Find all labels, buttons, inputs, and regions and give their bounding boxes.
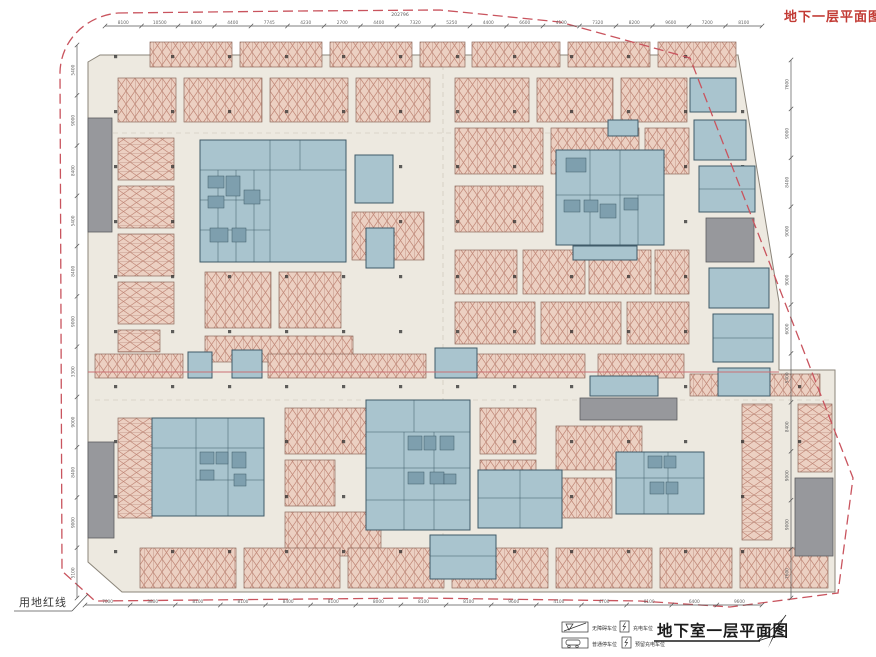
core-room	[355, 155, 393, 203]
basement-floor-plan: 8100105008400440077454230270044007320525…	[0, 0, 876, 657]
dimension-value: 9000	[785, 470, 791, 481]
dimension-value: 8400	[71, 265, 77, 276]
elevator-shaft	[650, 482, 664, 494]
legend: 无障碍车位 充电车位 普通停车位 预留充电车位	[562, 621, 665, 648]
core-room	[573, 246, 637, 260]
dimension-value: 9000	[71, 517, 77, 528]
core-room	[430, 535, 496, 579]
dimension-value: 3300	[71, 366, 77, 377]
dimension-value: 8100	[644, 599, 655, 605]
dimension-value: 9000	[785, 274, 791, 285]
dimension-value: 4100	[553, 599, 564, 605]
accessible-mark-icon	[566, 624, 573, 630]
elevator-shaft	[232, 228, 246, 242]
ramp-block	[706, 218, 754, 262]
core-room	[152, 418, 264, 516]
core-room	[435, 348, 477, 378]
dimension-value: 9000	[71, 115, 77, 126]
elevator-shaft	[226, 176, 240, 196]
dimension-value: 5250	[446, 20, 457, 26]
legend-symbol	[576, 645, 578, 647]
elevator-shaft	[208, 176, 224, 188]
dimension-value: 3800	[147, 599, 158, 605]
dimension-value: 5100	[71, 567, 77, 578]
dimension-value: 10500	[153, 20, 167, 26]
dimension-value: 8100	[118, 20, 129, 26]
core-room	[232, 350, 262, 378]
elevator-shaft	[566, 158, 586, 172]
total-dimension-label: 202796	[391, 12, 409, 18]
dimension-value: 7200	[702, 20, 713, 26]
elevator-shaft	[244, 190, 260, 204]
dimension-value: 8400	[785, 177, 791, 188]
dimension-value: 8400	[191, 20, 202, 26]
dimension-value: 4230	[300, 20, 311, 26]
core-room	[188, 352, 212, 378]
elevator-shaft	[440, 436, 454, 450]
elevator-shaft	[232, 452, 246, 468]
dimension-value: 9000	[785, 225, 791, 236]
core-a	[200, 140, 346, 262]
legend-label: 无障碍车位	[592, 625, 617, 632]
dimension-value: 9600	[734, 599, 745, 605]
dimension-value: 8000	[373, 599, 384, 605]
drawing-title-block: 地下室一层平面图	[654, 615, 789, 648]
dimension-value: 6600	[519, 20, 530, 26]
elevator-shaft	[208, 196, 224, 208]
core-room	[608, 120, 638, 136]
elevator-shaft	[430, 472, 444, 484]
dimension-value: 8400	[71, 165, 77, 176]
dimension-value: 8100	[328, 599, 339, 605]
dimension-value: 7320	[592, 20, 603, 26]
dimension-value: 5400	[785, 372, 791, 383]
legend-item-ev-charging: 充电车位	[620, 621, 653, 632]
dimension-value: 2700	[337, 20, 348, 26]
dimension-value: 9000	[71, 316, 77, 327]
elevator-shaft	[666, 482, 678, 494]
dimension-value: 9000	[785, 519, 791, 530]
dimension-strip-top: 8100105008400440077454230270044007320525…	[103, 20, 764, 28]
elevator-shaft	[200, 452, 214, 464]
lightning-icon	[623, 623, 626, 631]
elevator-shaft	[624, 198, 638, 210]
elevator-shaft	[648, 456, 662, 468]
core-room	[709, 268, 769, 308]
dimension-value: 7600	[785, 568, 791, 579]
dimension-value: 7000	[102, 599, 113, 605]
elevator-shaft	[408, 472, 424, 484]
dimension-value: 4400	[373, 20, 384, 26]
legend-label: 普通停车位	[592, 641, 617, 648]
dimension-value: 8100	[418, 599, 429, 605]
car-icon	[566, 640, 580, 645]
elevator-shaft	[600, 204, 616, 218]
dimension-value: 7320	[410, 20, 421, 26]
dimension-value: 9000	[71, 416, 77, 427]
dimension-value: 8100	[738, 20, 749, 26]
dimension-strip-left: 5400900084005400840090003300900084009000…	[71, 43, 80, 600]
core-room	[366, 228, 394, 268]
dimension-value: 7745	[264, 20, 275, 26]
page-title: 地下一层平面图	[784, 9, 876, 24]
core-room	[690, 78, 736, 112]
dimension-value: 5400	[71, 64, 77, 75]
legend-symbol	[568, 645, 570, 647]
dimension-value: 8200	[629, 20, 640, 26]
core-c	[152, 418, 264, 516]
dimension-value: 4400	[483, 20, 494, 26]
elevator-shaft	[424, 436, 436, 450]
elevator-shaft	[408, 436, 422, 450]
dimension-value: 9600	[508, 599, 519, 605]
dimension-value: 8100	[192, 599, 203, 605]
core-room	[694, 120, 746, 160]
ramp-block	[795, 478, 833, 556]
elevator-shaft	[444, 474, 456, 484]
ramp-block	[580, 398, 677, 420]
ramp-block	[88, 442, 114, 538]
legend-item-standard-stall: 普通停车位	[562, 638, 617, 648]
dimension-value: 7600	[785, 79, 791, 90]
elevator-shaft	[200, 470, 214, 480]
dimension-value: 8400	[785, 421, 791, 432]
elevator-shaft	[664, 456, 676, 468]
dimension-value: 6400	[689, 599, 700, 605]
dimension-value: 8100	[237, 599, 248, 605]
site-boundary-label: 用地红线	[19, 595, 67, 609]
elevator-shaft	[234, 474, 246, 486]
elevator-shaft	[210, 228, 228, 242]
dimension-value: 8400	[283, 599, 294, 605]
dimension-value: 8400	[71, 467, 77, 478]
dimension-value: 9600	[665, 20, 676, 26]
core-room	[366, 400, 470, 530]
elevator-shaft	[216, 452, 228, 464]
dimension-value: 4100	[556, 20, 567, 26]
elevator-shaft	[564, 200, 580, 212]
dimension-value: 9000	[785, 128, 791, 139]
legend-item-accessible-stall: 无障碍车位	[562, 622, 617, 632]
elevator-shaft	[584, 200, 598, 212]
core-d	[366, 400, 470, 530]
core-room	[590, 376, 658, 396]
legend-label: 预留充电车位	[635, 641, 665, 648]
drawing-sheet: 8100105008400440077454230270044007320525…	[0, 0, 876, 657]
dimension-value: 4400	[227, 20, 238, 26]
lightning-icon	[625, 639, 628, 647]
dimension-value: 5400	[71, 215, 77, 226]
dimension-value: 6000	[785, 323, 791, 334]
dimension-value: 4700	[599, 599, 610, 605]
legend-label: 充电车位	[633, 625, 653, 632]
ramp-block	[88, 118, 112, 232]
dimension-value: 8100	[463, 599, 474, 605]
